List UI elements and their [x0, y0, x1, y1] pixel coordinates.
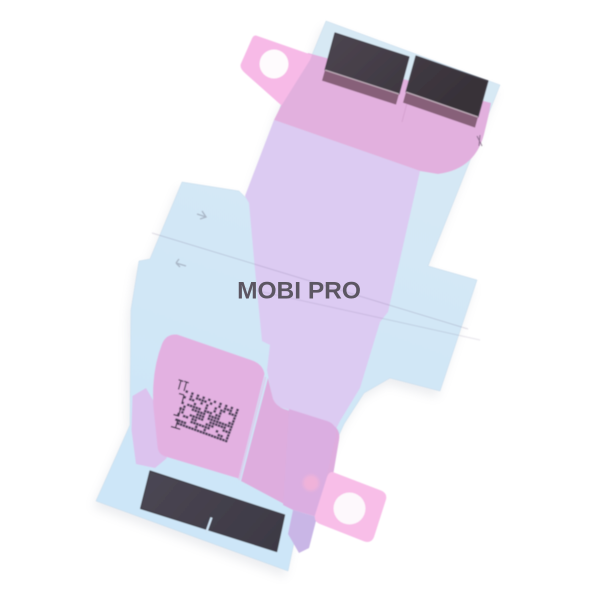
svg-text:MOBI PRO: MOBI PRO: [237, 278, 361, 305]
